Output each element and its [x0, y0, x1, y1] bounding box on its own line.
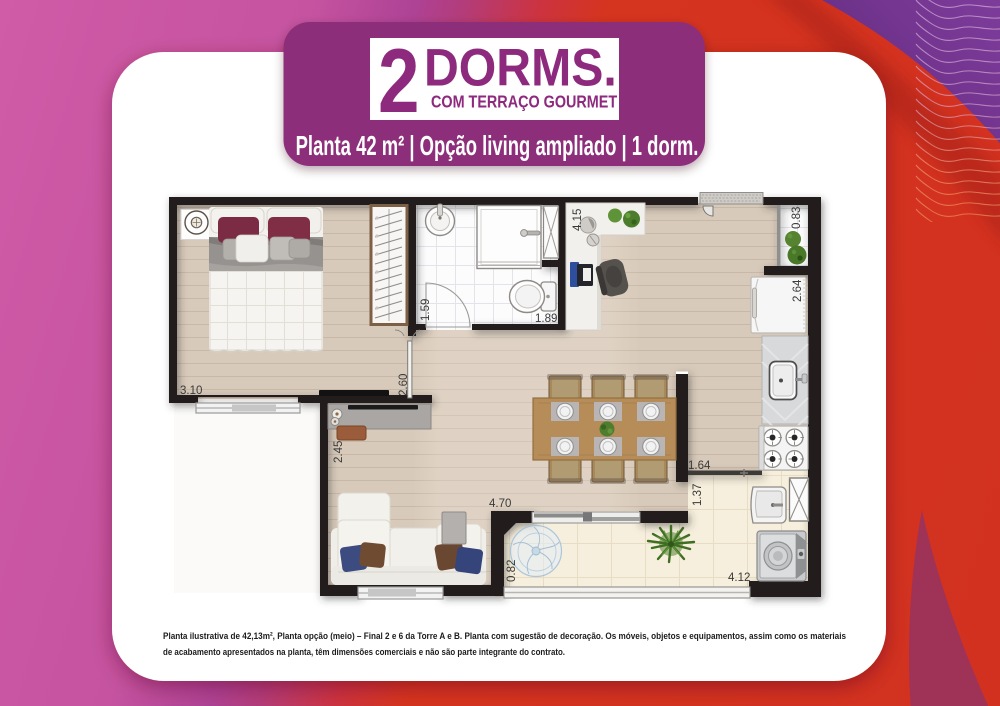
svg-text:de acabamento apresentados na: de acabamento apresentados na planta, tê…: [163, 647, 565, 658]
svg-text:4.15: 4.15: [572, 209, 584, 231]
svg-text:0.83: 0.83: [791, 207, 803, 229]
svg-text:1.59: 1.59: [420, 299, 432, 321]
svg-text:2: 2: [378, 30, 420, 132]
svg-text:4.70: 4.70: [489, 498, 511, 510]
svg-text:COM TERRAÇO GOURMET: COM TERRAÇO GOURMET: [431, 91, 618, 111]
svg-text:1.37: 1.37: [692, 484, 704, 506]
svg-text:Planta 42 m² | Opção living am: Planta 42 m² | Opção living ampliado | 1…: [296, 132, 699, 162]
svg-text:Planta ilustrativa de 42,13m²,: Planta ilustrativa de 42,13m², Planta op…: [163, 631, 846, 642]
svg-text:0.82: 0.82: [506, 560, 518, 582]
svg-text:1.89: 1.89: [535, 313, 557, 325]
svg-text:2.45: 2.45: [333, 441, 345, 463]
svg-text:2.64: 2.64: [792, 279, 804, 302]
svg-text:DORMS.: DORMS.: [424, 39, 617, 98]
svg-text:1.64: 1.64: [688, 460, 711, 472]
svg-text:3.10: 3.10: [180, 385, 202, 397]
svg-text:2.60: 2.60: [398, 374, 410, 396]
svg-text:4.12: 4.12: [728, 572, 750, 584]
